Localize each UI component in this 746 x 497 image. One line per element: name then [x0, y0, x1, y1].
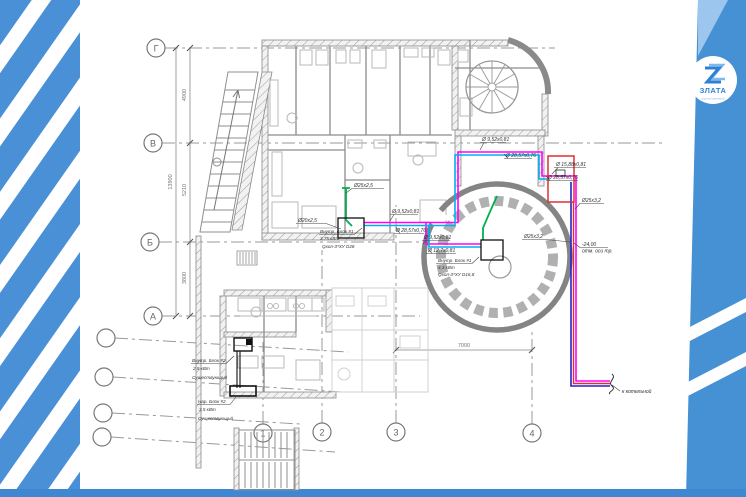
label-main-riser-2: Ø25x3,2: [523, 234, 543, 240]
axis-col-4: 4: [529, 429, 534, 439]
unit-kitchen-power: 3,75 кВт: [320, 236, 339, 241]
bottom-accent-bar: [0, 489, 746, 497]
dim-5210: 5210: [182, 184, 188, 196]
label-green-branch: Ø20x2,5: [297, 218, 317, 224]
unit-indoor2-power: 2,5 кВт: [192, 366, 210, 371]
pipe-labels: Ø25x2,5 Ø20x2,5 Ø 9,52x0,81 Ø 28,57x0,76…: [297, 137, 652, 395]
left-stripe-band: [0, 0, 80, 497]
company-logo: ЗЛАТА группа компаний: [689, 56, 737, 104]
round-hall: [421, 184, 570, 330]
logo-tagline: группа компаний: [701, 97, 725, 101]
unit-outdoor2-power: 3,5 кВт: [199, 407, 216, 412]
label-elevation-note: отм. оси тр.: [582, 249, 613, 255]
label-pair-mid-upper: Ø 9,52x0,81: [391, 209, 419, 215]
unit-hall-spec: Qхол-3*ХУ D16,8: [438, 272, 475, 277]
pipe-red: [574, 202, 611, 384]
dim-13900: 13900: [168, 174, 174, 189]
unit-indoor2-title: Внутр. Блок #2: [192, 358, 226, 363]
unit-hall-title: Внутр. Блок #1: [438, 258, 472, 263]
pipe-green-riser: [342, 188, 352, 226]
axis-col-3: 3: [393, 428, 398, 438]
label-box-lower: Ø 28,57x0,76: [547, 175, 578, 181]
unit-kitchen-spec: Qхол-3*ХУ D28: [322, 244, 355, 249]
pipe-blue: [571, 182, 610, 386]
label-elevation: -24,00: [582, 242, 596, 248]
axis-row-b: Б: [147, 238, 153, 248]
label-top-lower: Ø 28,57x0,76: [505, 153, 536, 159]
unit-outdoor2-status: Существующий: [198, 415, 234, 421]
label-pair-mid-lower: Ø 28,57x0,76: [395, 228, 426, 234]
dimension-labels: 4900 5210 3800 13900 7000: [168, 89, 470, 349]
unit-hall-power: 4,3 кВт: [438, 265, 455, 270]
label-hall-upper: Ø 9,52x0,81: [423, 235, 451, 241]
line-break-symbol: [609, 374, 613, 394]
axis-row-a: А: [150, 312, 156, 322]
label-box-upper: Ø 15,88x0,81: [555, 162, 586, 168]
unit-outdoor2-title: Нар. Блок #2: [198, 399, 226, 404]
dim-7000: 7000: [458, 343, 470, 349]
dim-3800: 3800: [182, 272, 188, 284]
barcode-detail: [237, 251, 257, 265]
label-green-riser: Ø25x2,5: [353, 183, 373, 189]
unit-indoor2-status: Существующий: [192, 374, 228, 380]
drawing-page: ЗЛАТА группа компаний Г В Б А 1 2 3 4: [0, 0, 746, 497]
partition-walls: [264, 40, 542, 392]
dim-4900: 4900: [182, 89, 188, 101]
unit-kitchen-title: Внутр. Блок #1: [320, 229, 354, 234]
label-main-riser-1: Ø25x3,2: [581, 198, 601, 204]
axis-row-g: Г: [154, 44, 159, 54]
axis-row-v: В: [150, 139, 156, 149]
spiral-stair: [466, 61, 518, 113]
faint-rooms: [332, 288, 428, 392]
logo-name: ЗЛАТА: [700, 86, 727, 95]
label-to-boiler: к котельной: [622, 388, 652, 395]
label-top-upper: Ø 9,52x0,81: [481, 137, 509, 143]
floor-plan-canvas: ЗЛАТА группа компаний Г В Б А 1 2 3 4: [0, 0, 746, 497]
axis-col-2: 2: [319, 428, 324, 438]
label-hall-lower: Ø 12,7x0,81: [427, 248, 455, 254]
